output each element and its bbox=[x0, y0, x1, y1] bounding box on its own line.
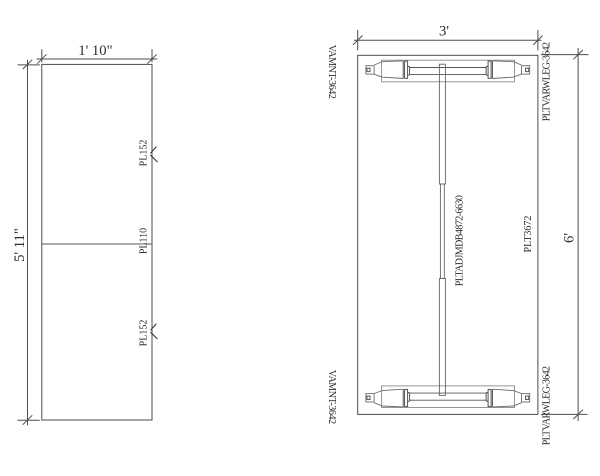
svg-text:1' 10": 1' 10" bbox=[78, 43, 112, 59]
svg-text:PLT3672: PLT3672 bbox=[523, 216, 534, 253]
svg-text:VAMNT-3642: VAMNT-3642 bbox=[326, 370, 337, 424]
svg-text:PL152: PL152 bbox=[138, 140, 149, 167]
svg-text:PLTADJMDB4872-6630: PLTADJMDB4872-6630 bbox=[455, 195, 466, 286]
svg-text:6': 6' bbox=[561, 233, 577, 243]
svg-text:PLTVARWLEG-3642: PLTVARWLEG-3642 bbox=[542, 366, 553, 445]
svg-text:VAMNT-3642: VAMNT-3642 bbox=[326, 45, 337, 99]
svg-text:PLTVARWLEG-3642: PLTVARWLEG-3642 bbox=[542, 42, 553, 121]
svg-text:3': 3' bbox=[439, 23, 449, 39]
svg-text:PL152: PL152 bbox=[138, 320, 149, 347]
svg-text:5' 11": 5' 11" bbox=[12, 228, 28, 262]
svg-text:PL110: PL110 bbox=[138, 228, 149, 254]
